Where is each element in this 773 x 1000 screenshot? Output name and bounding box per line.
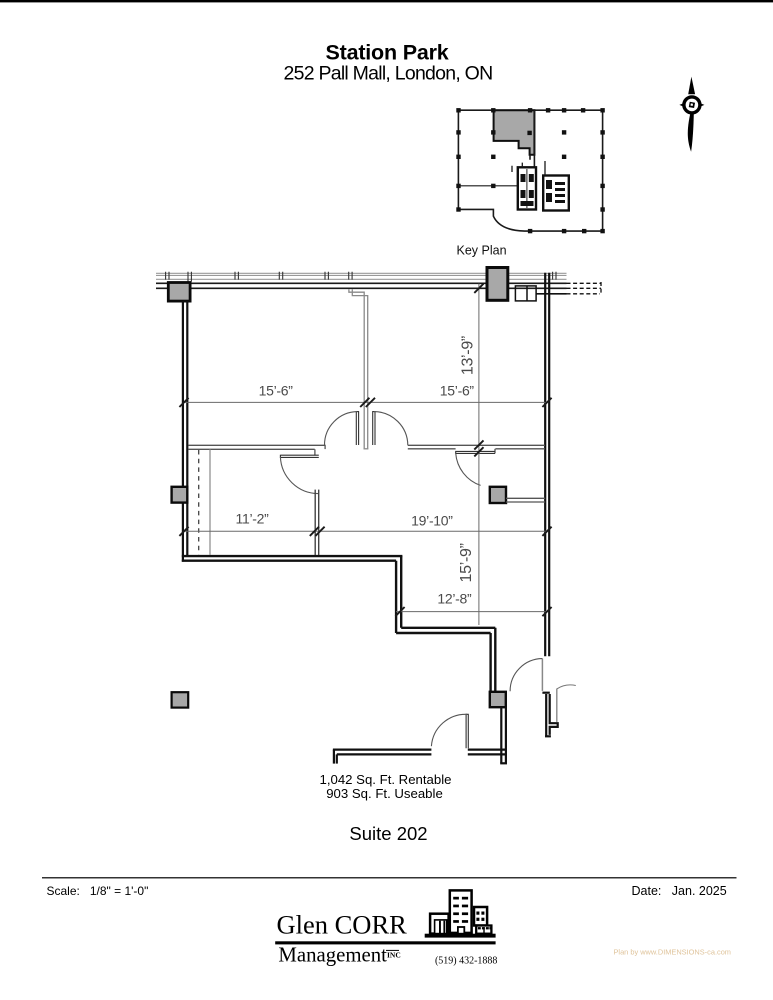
svg-text:13’-9”: 13’-9” — [459, 336, 476, 375]
svg-text:Date: Jan. 2025: Date: Jan. 2025 — [632, 884, 727, 898]
svg-text:(519) 432-1888: (519) 432-1888 — [435, 955, 498, 966]
svg-text:15’-6”: 15’-6” — [259, 382, 294, 398]
svg-text:INC: INC — [387, 950, 401, 959]
svg-text:1,042 Sq. Ft. Rentable: 1,042 Sq. Ft. Rentable — [320, 772, 452, 787]
svg-text:12’-8”: 12’-8” — [437, 591, 472, 607]
svg-text:15’-6”: 15’-6” — [440, 382, 475, 398]
svg-text:19’-10”: 19’-10” — [411, 512, 453, 528]
svg-text:11’-2”: 11’-2” — [236, 510, 270, 526]
svg-text:15’-9”: 15’-9” — [458, 543, 475, 582]
svg-text:903 Sq. Ft. Useable: 903 Sq. Ft. Useable — [326, 786, 443, 801]
svg-text:Suite 202: Suite 202 — [349, 823, 427, 844]
svg-text:Station Park: Station Park — [325, 41, 448, 65]
svg-text:252 Pall Mall, London, ON: 252 Pall Mall, London, ON — [284, 63, 493, 85]
svg-text:Plan by www.DIMENSIONS-ca.com: Plan by www.DIMENSIONS-ca.com — [614, 948, 731, 957]
svg-text:Key Plan: Key Plan — [457, 244, 507, 258]
svg-text:Glen CORR: Glen CORR — [277, 910, 408, 940]
svg-text:Scale: 1/8" = 1'-0": Scale: 1/8" = 1'-0" — [47, 884, 149, 898]
svg-text:Management: Management — [278, 944, 387, 967]
